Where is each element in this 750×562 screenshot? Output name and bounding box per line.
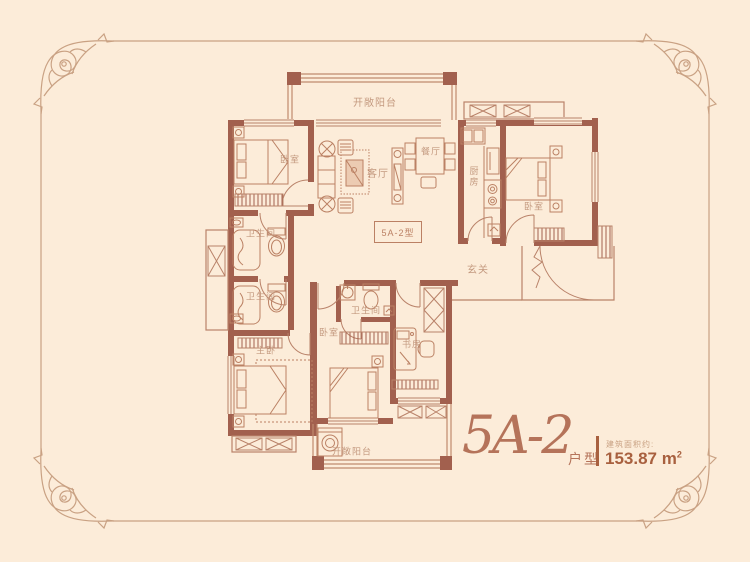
- room-label-bath-lower: 卫生间: [246, 293, 276, 302]
- room-label-living-room: 客厅: [367, 170, 389, 180]
- living-room-set: [318, 140, 403, 213]
- area-value: 153.87 m2: [605, 449, 682, 469]
- room-label-bedroom-top-right: 卧室: [524, 203, 544, 212]
- room-label-master-bedroom: 主卧: [256, 347, 276, 356]
- room-label-study: 书房: [402, 341, 422, 350]
- room-label-entry: 玄关: [467, 266, 489, 276]
- unit-type-box: 5A-2型: [374, 221, 422, 243]
- floorplan-page: 开敞阳台 卧室 客厅 餐厅 厨房 卧室 卫生间 卫生间 玄关 主卧 卧室 卫生间…: [0, 0, 750, 562]
- room-label-balcony-bottom: 开敞阳台: [332, 448, 372, 457]
- room-label-dining-room: 餐厅: [421, 148, 441, 157]
- dining-set: [405, 138, 455, 188]
- room-label-balcony-top: 开敞阳台: [353, 99, 397, 109]
- bath-lower-fixtures: [230, 284, 285, 324]
- corner-flourish-top-right: [636, 34, 716, 114]
- corner-flourish-top-left: [34, 34, 114, 114]
- room-label-bath-mid: 卫生间: [351, 307, 381, 316]
- corner-flourish-bottom-left: [34, 448, 114, 528]
- bed-mid: [330, 356, 383, 418]
- room-label-kitchen: 厨房: [469, 166, 478, 188]
- area-value-superscript: 2: [677, 449, 682, 459]
- room-label-bath-upper: 卫生间: [246, 230, 276, 239]
- floor-plan-drawing: [0, 0, 750, 562]
- unit-name-script: 5A-2: [462, 410, 571, 462]
- area-value-number: 153.87 m: [605, 449, 677, 468]
- bed-master: [233, 354, 312, 427]
- room-label-bedroom-top-left: 卧室: [280, 156, 300, 165]
- title-divider: [596, 436, 599, 466]
- room-label-bedroom-mid: 卧室: [319, 329, 339, 338]
- kitchen-fixtures: [461, 128, 501, 238]
- bath-upper-fixtures: [230, 218, 285, 270]
